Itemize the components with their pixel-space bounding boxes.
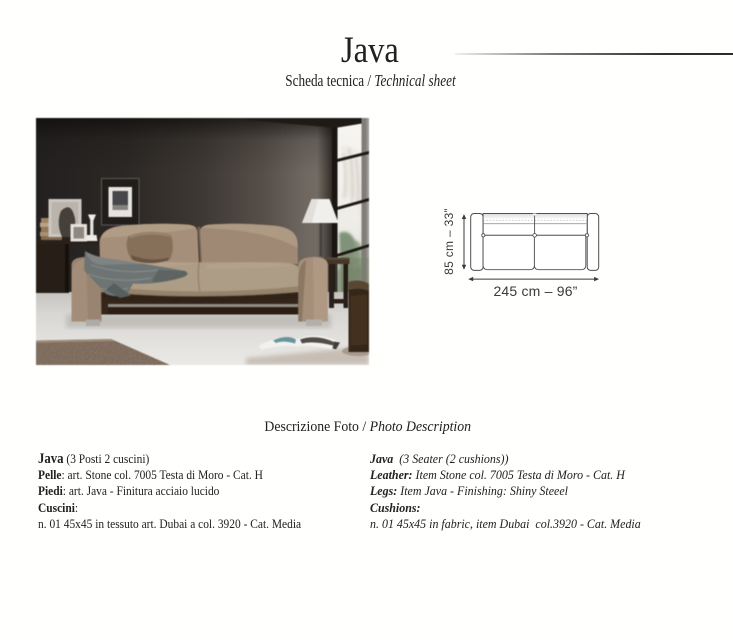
svg-text:85 cm – 33”: 85 cm – 33” <box>442 208 456 275</box>
svg-text:245 cm – 96”: 245 cm – 96” <box>493 283 577 299</box>
